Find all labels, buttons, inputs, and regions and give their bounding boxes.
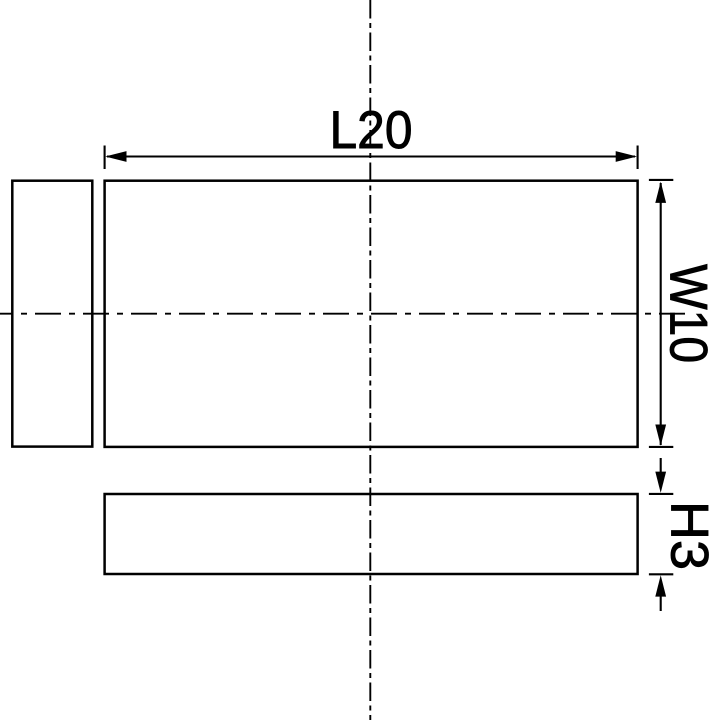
svg-text:W10: W10	[658, 264, 717, 363]
svg-text:H3: H3	[660, 501, 719, 570]
svg-text:L20: L20	[330, 101, 413, 160]
